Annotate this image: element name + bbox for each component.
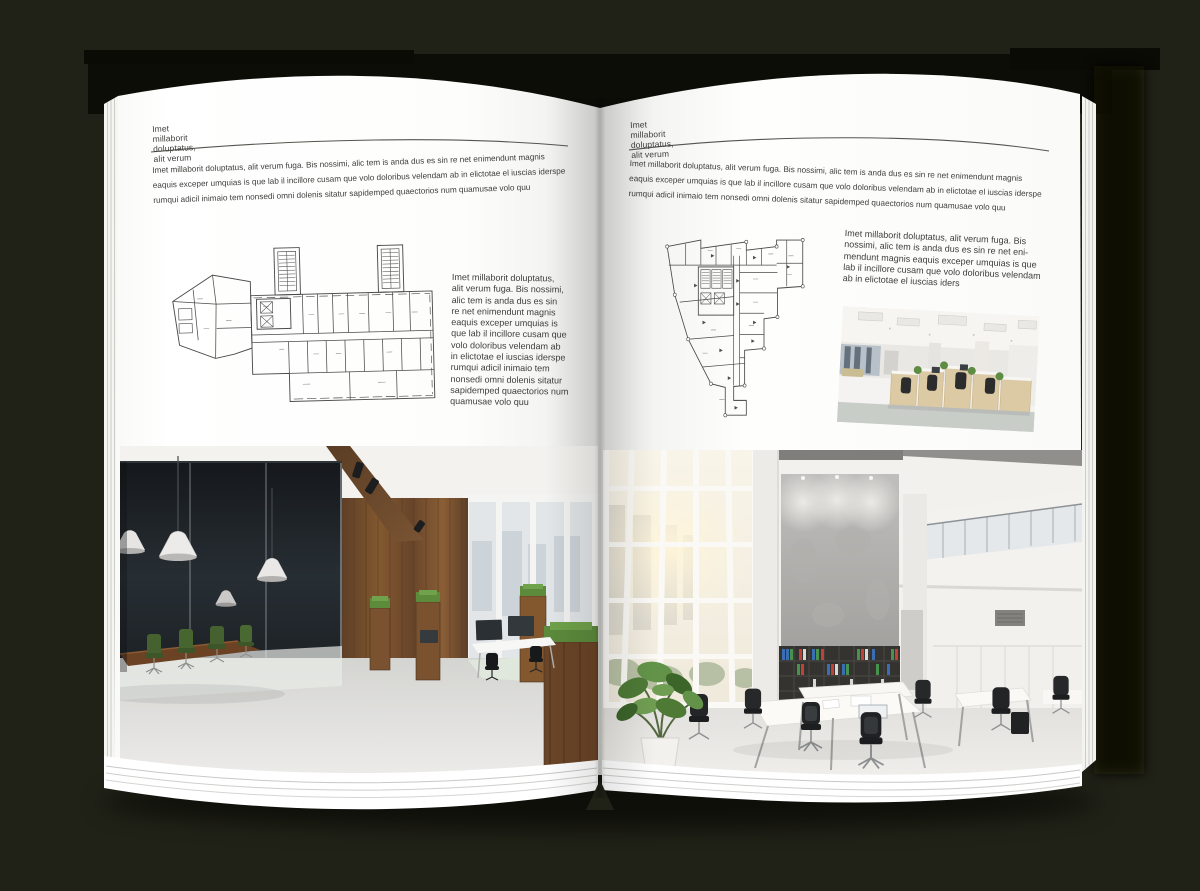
door-marks: [694, 254, 790, 410]
small-office-photo: [837, 306, 1040, 432]
intro-paragraph: Imet millaborit doluptatus, alit verum f…: [628, 156, 1042, 217]
page-header: Imet millaborit doluptatus, alit verum: [630, 119, 674, 160]
cover-top-edge: [88, 54, 1112, 114]
concrete-feature-wall: [773, 470, 901, 646]
right-page-stack: [1082, 96, 1096, 772]
intro-paragraph: Imet millaborit doluptatus, alit verum f…: [152, 149, 566, 208]
right-office-photo: [603, 450, 1082, 782]
page-header: Imet millaborit doluptatus, alit verum: [152, 122, 196, 164]
corridor-opening: [901, 610, 923, 690]
right-cover-shadow: [1094, 66, 1144, 774]
book-spread: Imet millaborit doluptatus, alit verum I…: [0, 0, 1200, 891]
wall-grille: [995, 610, 1025, 626]
right-header-rule: [629, 138, 1049, 151]
left-office-photo: [120, 446, 598, 776]
right-floor-plan: [652, 228, 812, 418]
side-text: Imet millaborit doluptatus, alit verum f…: [450, 272, 570, 409]
spine-bottom-notch: [586, 780, 614, 810]
stair-tower: [377, 245, 404, 292]
left-page-stack: [104, 96, 118, 772]
stair-tower: [274, 248, 301, 295]
side-text: Imet millaborit doluptatus, alit verum f…: [842, 228, 1042, 293]
left-floor-plan: [158, 233, 445, 418]
book-shadow: [100, 774, 1100, 830]
plan-annotations: [703, 248, 794, 399]
